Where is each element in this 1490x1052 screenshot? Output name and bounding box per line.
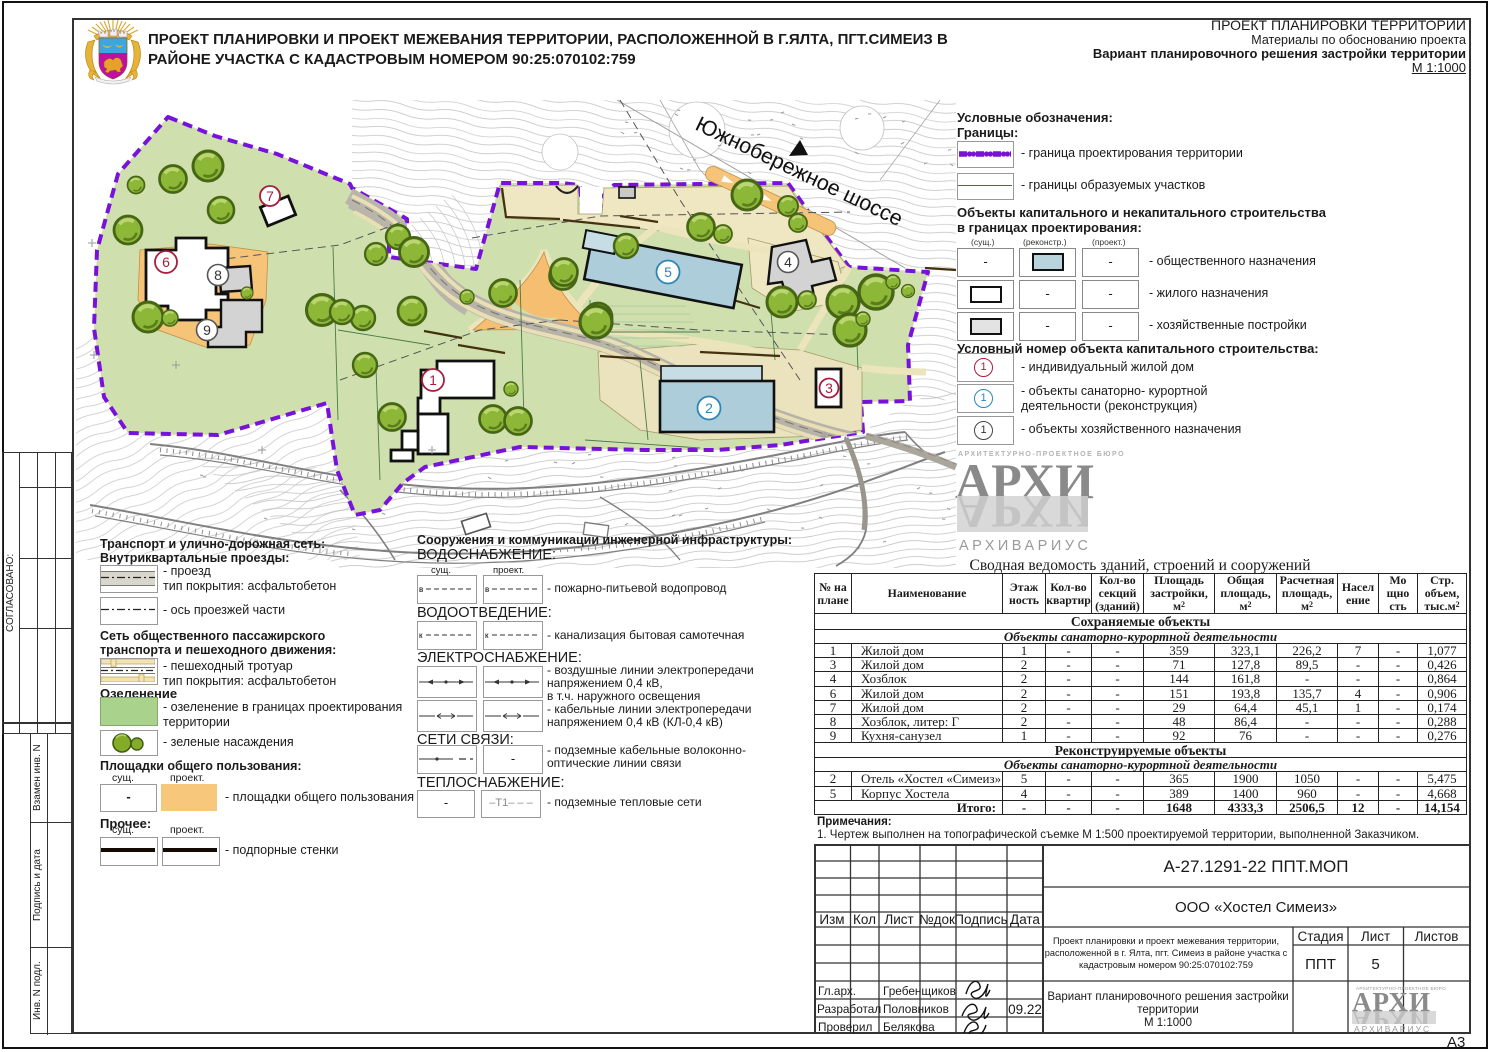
svg-text:АРХИВАРИУС: АРХИВАРИУС <box>1354 1024 1431 1034</box>
svg-text:Проект планировки и проект меж: Проект планировки и проект межевания тер… <box>1053 936 1279 946</box>
svg-text:ППТ: ППТ <box>1305 956 1336 973</box>
svg-text:9: 9 <box>203 322 211 338</box>
svg-text:Подпись: Подпись <box>954 912 1007 927</box>
svg-text:5: 5 <box>664 264 672 280</box>
svg-text:в: в <box>419 585 423 593</box>
svg-text:Гл.арх.: Гл.арх. <box>818 984 856 998</box>
svg-text:М 1:1000: М 1:1000 <box>1144 1017 1192 1029</box>
svg-text:4: 4 <box>784 254 792 270</box>
svg-text:территории: территории <box>1137 1004 1199 1016</box>
svg-text:А-27.1291-22 ППТ.МОП: А-27.1291-22 ППТ.МОП <box>1163 857 1348 876</box>
svg-text:Разработал: Разработал <box>817 1002 881 1016</box>
svg-text:3: 3 <box>825 380 833 396</box>
svg-text:расположенной в г. Ялта, пгт.: расположенной в г. Ялта, пгт. Симеиз в р… <box>1045 948 1288 958</box>
svg-text:№док: №док <box>919 912 955 927</box>
svg-text:6: 6 <box>162 254 170 270</box>
svg-text:к: к <box>485 631 489 639</box>
svg-text:1: 1 <box>429 372 437 388</box>
svg-text:Белякова: Белякова <box>883 1020 935 1034</box>
svg-text:Изм: Изм <box>819 912 844 927</box>
svg-text:Лист: Лист <box>1361 929 1390 944</box>
svg-text:в: в <box>485 585 489 593</box>
svg-text:Проверил: Проверил <box>818 1020 872 1034</box>
svg-text:Кол: Кол <box>853 912 876 927</box>
svg-text:Гребенщиков: Гребенщиков <box>883 984 956 998</box>
svg-text:09.22: 09.22 <box>1008 1002 1042 1017</box>
svg-text:7: 7 <box>266 188 274 204</box>
svg-text:Стадия: Стадия <box>1297 929 1343 944</box>
svg-text:к: к <box>419 631 423 639</box>
svg-text:кадастровым номером 90:25:0701: кадастровым номером 90:25:070102:759 <box>1079 960 1253 970</box>
svg-text:Листов: Листов <box>1415 929 1459 944</box>
svg-text:5: 5 <box>1371 956 1379 973</box>
svg-text:2: 2 <box>705 400 713 416</box>
svg-text:ООО «Хостел Симеиз»: ООО «Хостел Симеиз» <box>1175 899 1337 916</box>
svg-text:8: 8 <box>214 267 222 283</box>
svg-text:Дата: Дата <box>1010 912 1040 927</box>
svg-text:Лист: Лист <box>884 912 913 927</box>
svg-text:Половников: Половников <box>883 1002 949 1016</box>
svg-text:Вариант планировочного решения: Вариант планировочного решения застройки <box>1047 991 1288 1003</box>
